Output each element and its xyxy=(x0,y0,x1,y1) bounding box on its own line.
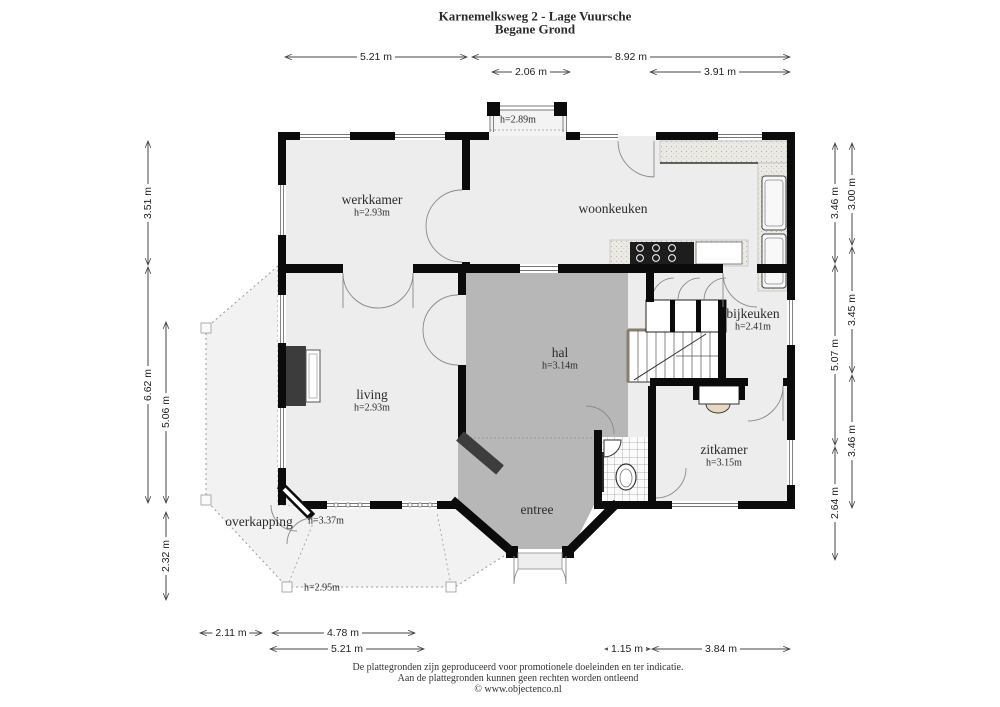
floorplan-page: Karnemelksweg 2 - Lage Vuursche Begane G… xyxy=(0,0,1000,707)
dim-bottom-521: 5.21 m xyxy=(328,643,366,655)
room-height-hal: h=3.14m xyxy=(542,360,578,372)
height-note-porch: h=2.95m xyxy=(304,582,340,594)
dim-top-206: 2.06 m xyxy=(512,66,550,78)
room-label-zitkamer: zitkamer xyxy=(700,442,747,458)
dim-top-892: 8.92 m xyxy=(612,51,650,63)
room-label-overkapping: overkapping xyxy=(225,514,292,530)
dim-right-300: 3.00 m xyxy=(846,175,858,213)
footer-disclaimer-1: De plattegronden zijn geproduceerd voor … xyxy=(353,662,684,673)
room-label-werkkamer: werkkamer xyxy=(342,192,403,208)
dim-left-662: 6.62 m xyxy=(142,366,154,404)
room-height-living: h=2.93m xyxy=(354,402,390,414)
height-note-bay: h=2.89m xyxy=(500,114,536,126)
footer-copyright: © www.objectenco.nl xyxy=(474,684,561,695)
room-label-living: living xyxy=(356,387,388,403)
dim-left-232: 2.32 m xyxy=(160,537,172,575)
dim-right-264: 2.64 m xyxy=(829,484,841,522)
dim-top-521: 5.21 m xyxy=(357,51,395,63)
dim-bottom-384: 3.84 m xyxy=(702,643,740,655)
room-label-hal: hal xyxy=(552,345,569,361)
room-height-bijkeuken: h=2.41m xyxy=(735,321,771,333)
room-height-werkkamer: h=2.93m xyxy=(354,207,390,219)
floorplan-graphic xyxy=(0,0,1000,707)
dim-left-351: 3.51 m xyxy=(142,184,154,222)
toilet-room xyxy=(596,437,648,503)
fireplace xyxy=(286,346,320,406)
room-label-entree: entree xyxy=(521,502,554,518)
dim-right-346a: 3.46 m xyxy=(829,184,841,222)
dim-right-346b: 3.46 m xyxy=(846,422,858,460)
room-label-bijkeuken: bijkeuken xyxy=(726,306,779,322)
room-height-zitkamer: h=3.15m xyxy=(706,457,742,469)
staircase xyxy=(628,330,722,382)
dim-bottom-211: 2.11 m xyxy=(212,627,249,639)
dim-left-506: 5.06 m xyxy=(160,393,172,431)
dim-bottom-115: 1.15 m xyxy=(608,643,646,655)
dim-right-345: 3.45 m xyxy=(846,291,858,329)
height-note-porch-door: h=3.37m xyxy=(308,515,344,527)
plan-subtitle: Begane Grond xyxy=(495,23,575,38)
stove-icon xyxy=(630,242,742,264)
dim-right-507: 5.07 m xyxy=(829,336,841,374)
room-label-woonkeuken: woonkeuken xyxy=(579,201,648,217)
footer-disclaimer-2: Aan de plattegronden kunnen geen rechten… xyxy=(398,673,639,684)
dim-top-391: 3.91 m xyxy=(701,66,739,78)
dim-bottom-478: 4.78 m xyxy=(324,627,362,639)
